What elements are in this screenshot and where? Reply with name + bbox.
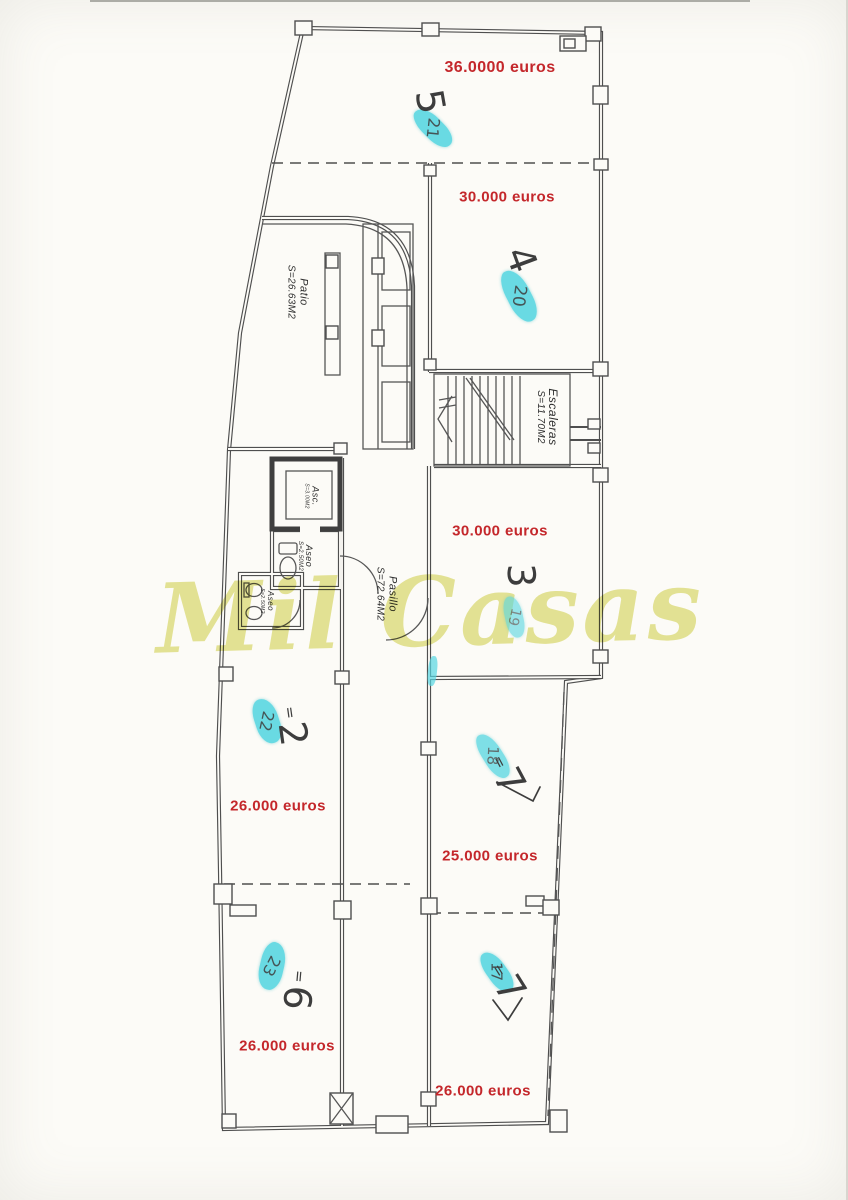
patio-windows [262, 224, 413, 449]
price-room-4: 30.000 euros [459, 189, 555, 206]
stairs [434, 374, 601, 466]
handwritten-unit-3: 3 [499, 560, 544, 589]
watermark: Mil Casas [154, 548, 705, 675]
handwritten-unit-2: =2 [267, 703, 316, 749]
label-ascensor: Asc. S=3.00M2 [304, 483, 321, 508]
handwritten-unit-6: =6 [274, 968, 321, 1011]
label-patio: Patio S=26.63M2 [284, 265, 309, 319]
price-room-3: 30.000 euros [452, 523, 548, 540]
price-room-6: 26.000 euros [239, 1038, 335, 1055]
price-room-18: 25.000 euros [442, 848, 538, 865]
label-escaleras: Escaleras S=11.70M2 [534, 388, 560, 445]
price-room-7: 26.000 euros [435, 1083, 531, 1100]
price-room-5: 36.0000 euros [444, 59, 555, 77]
price-room-2: 26.000 euros [230, 798, 326, 815]
scanned-floor-plan-page: Patio S=26.63M2 Escaleras S=11.70M2 Pasi… [0, 0, 848, 1200]
